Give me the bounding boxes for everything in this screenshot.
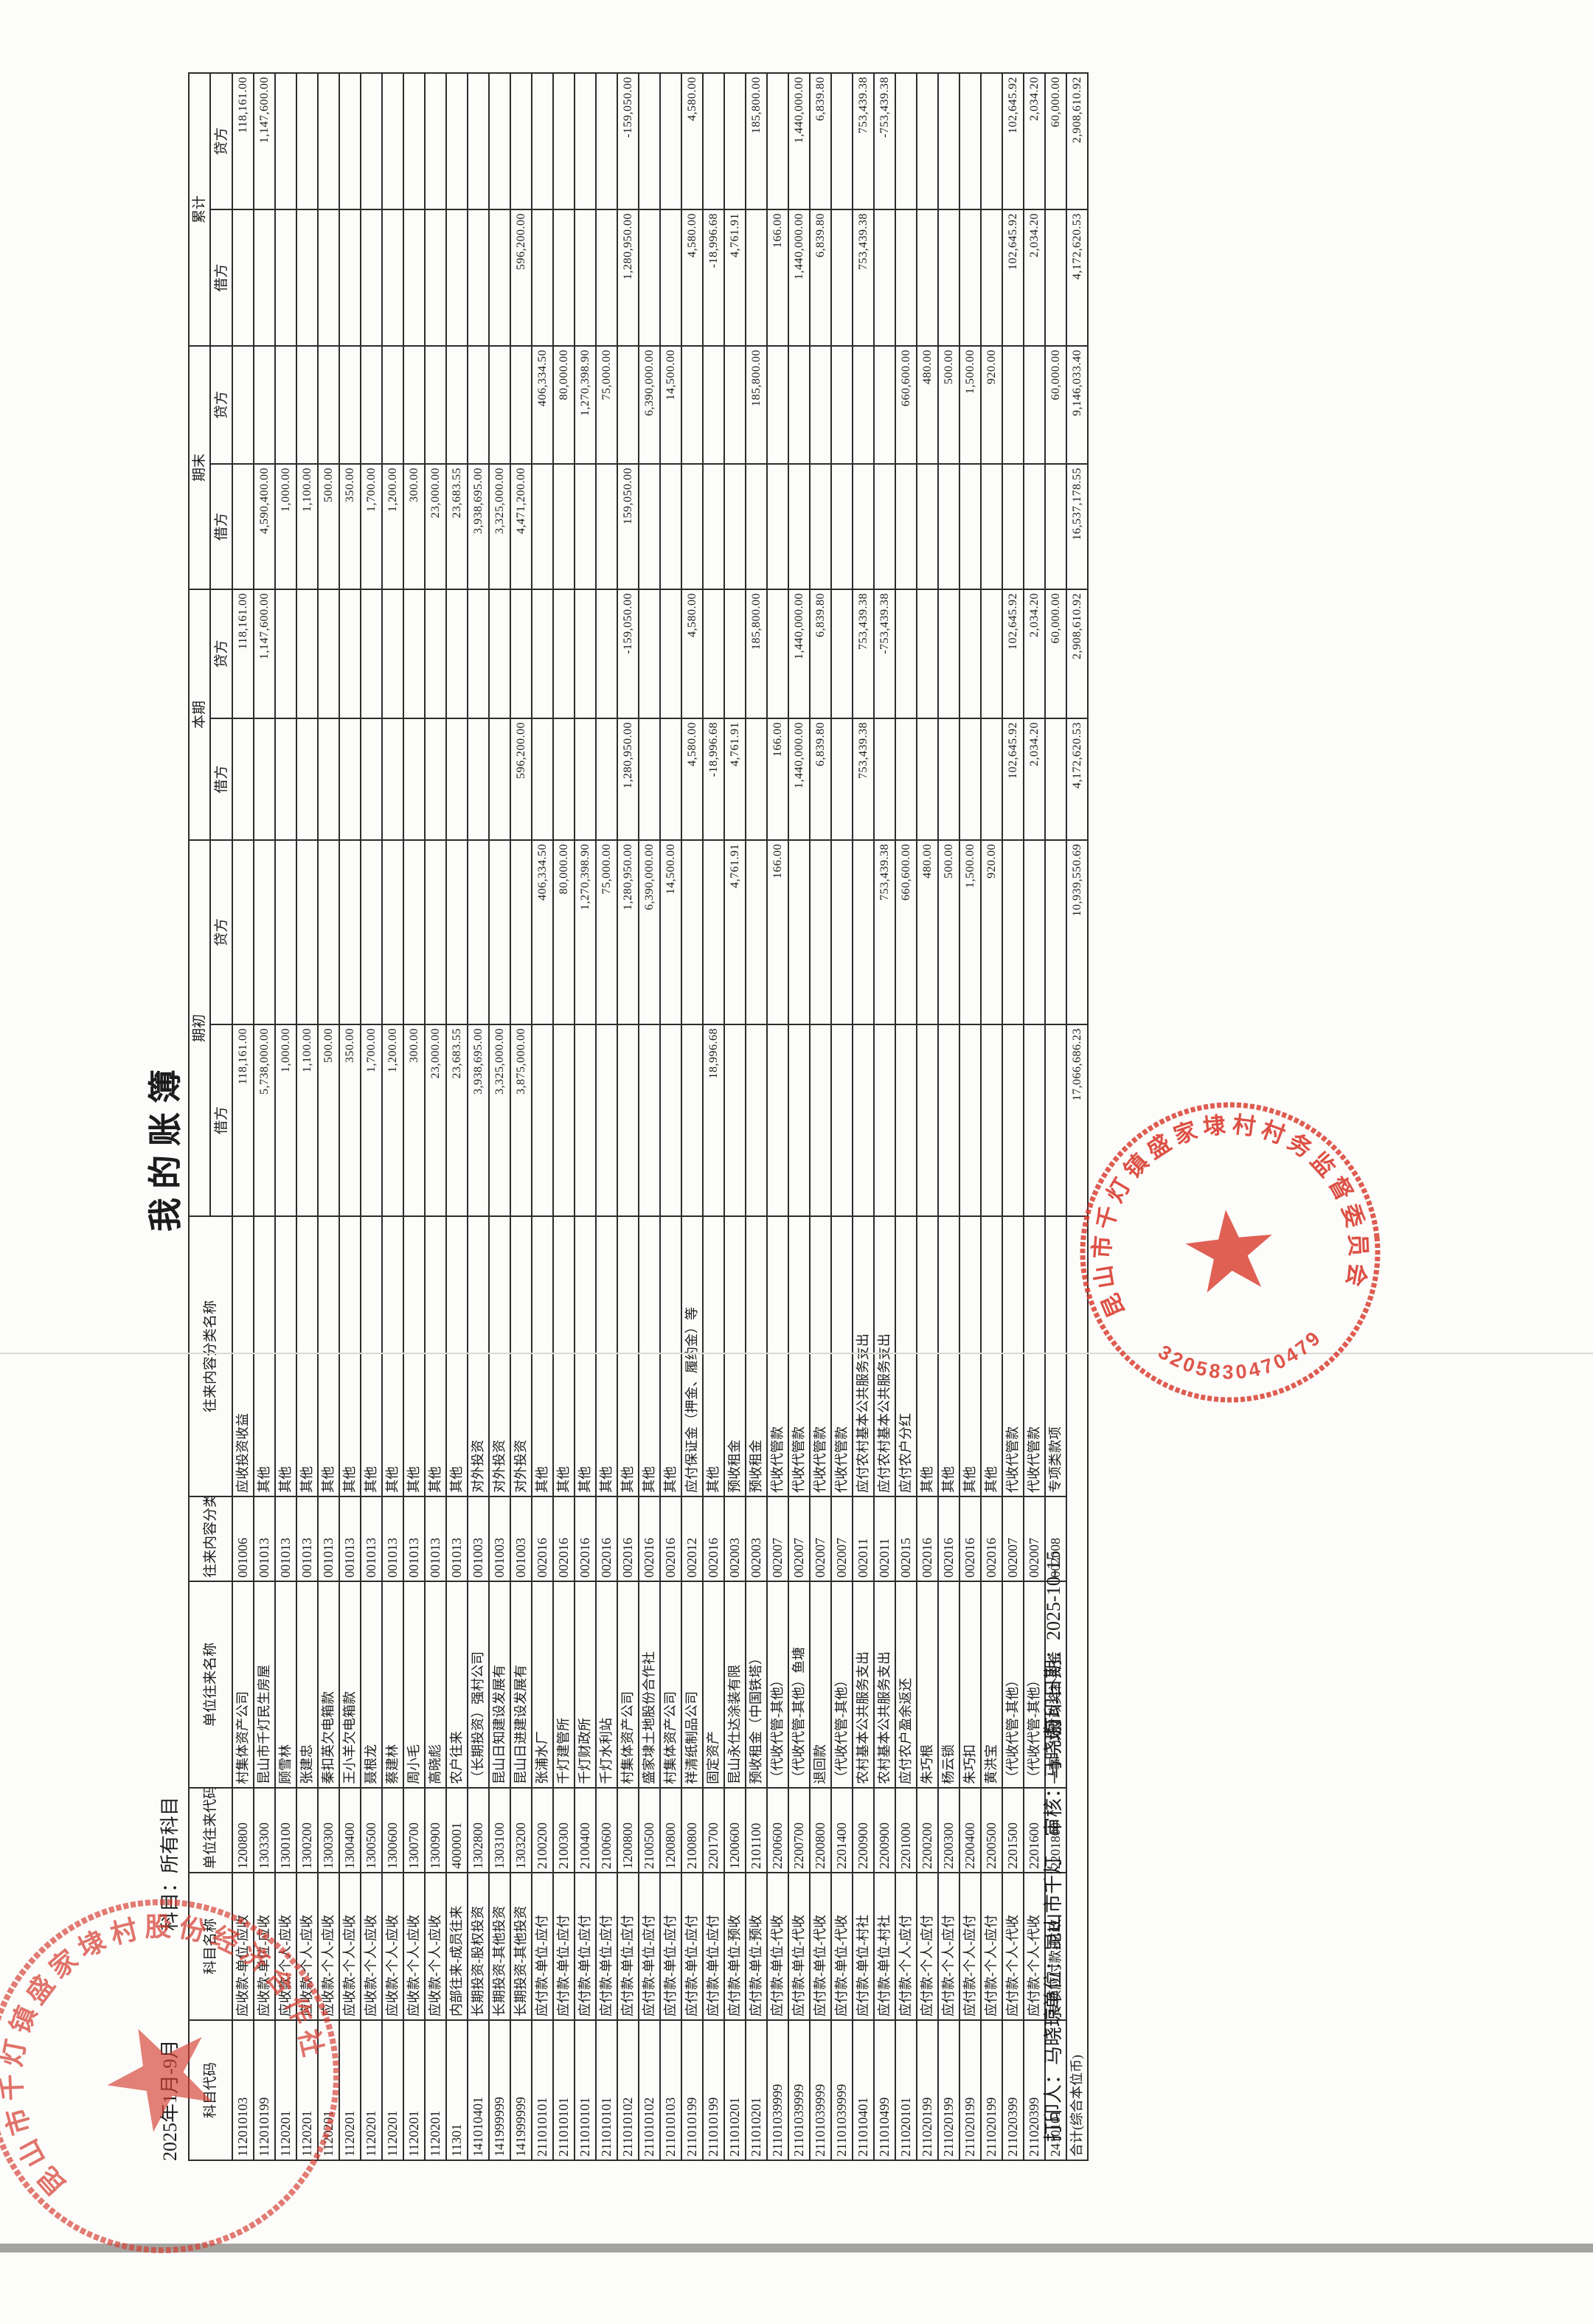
cell-period-debit: 166.00 [767,718,788,840]
cell-ending-credit [489,346,510,464]
cell-category-name: 其他 [660,1216,681,1496]
table-row: 1120201应收款-个人-应收1300500聂根龙001013其他1,700.… [361,73,382,2160]
cell-cumulative-debit [382,209,403,346]
cell-subject-name: 应付款-单位-预收 [746,1873,767,2020]
cell-period-credit [596,589,617,718]
total-opening-debit: 17,066,686.23 [1066,1024,1088,1216]
cell-cumulative-debit [639,209,660,346]
cell-unit-code: 1200800 [232,1788,254,1873]
cell-ending-credit [1002,346,1024,464]
cell-unit-code: 1300900 [425,1788,446,1873]
col-header-unit-name: 单位往来名称 [189,1581,232,1788]
cell-unit-name: （代收代管-其他）鱼塘 [788,1581,810,1788]
cell-opening-debit [553,1024,575,1216]
sub-header-opening-debit: 借方 [210,1024,232,1216]
cell-category-code: 002007 [810,1496,831,1581]
cell-subject-code: 211010101 [575,2020,596,2160]
cell-ending-debit: 1,200.00 [382,464,403,589]
cell-ending-debit: 500.00 [318,464,339,589]
cell-subject-name: 应付款-单位-应付 [617,1873,639,2020]
cell-unit-code: 1300700 [403,1788,425,1873]
cell-unit-code: 2200800 [810,1788,831,1873]
cell-opening-debit [767,1024,788,1216]
col-header-subject-code: 科目代码 [189,2020,232,2160]
cell-category-name: 应付农村基本公共服务支出 [874,1216,895,1496]
footer-unit-auditor: 单位：昆山市千灯 审核：马晓琼 [1038,1721,1066,2009]
cell-unit-name: 朱巧扣 [959,1581,981,1788]
cell-ending-credit [853,346,874,464]
cell-cumulative-debit [425,209,446,346]
cell-ending-credit: 1,500.00 [959,346,981,464]
cell-subject-name: 应付款-单位-应付 [639,1873,660,2020]
cell-opening-debit [1002,1024,1024,1216]
cell-subject-name: 应付款-单位-应付 [553,1873,575,2020]
cell-opening-debit [874,1024,895,1216]
cell-cumulative-credit: 102,645.92 [1002,73,1024,209]
cell-cumulative-debit: 6,839.80 [810,209,831,346]
cell-ending-debit [660,464,681,589]
cell-cumulative-debit [746,209,767,346]
cell-category-name: 其他 [703,1216,724,1496]
cell-ending-credit [810,346,831,464]
cell-subject-name: 应付款-单位-应付 [596,1873,617,2020]
sub-header-period-credit: 贷方 [210,589,232,718]
cell-ending-debit [831,464,853,589]
cell-ending-credit [617,346,639,464]
cell-category-name: 其他 [403,1216,425,1496]
cell-period-debit [339,718,361,840]
cell-ending-credit [318,346,339,464]
scan-edge-shadow [0,2244,1593,2252]
cell-category-code: 002016 [596,1496,617,1581]
cell-subject-name: 应付款-个人-代收 [1002,1873,1024,2020]
report-period: 2025年1月-9月 [155,2039,182,2161]
cell-unit-code: 2201400 [831,1788,853,1873]
cell-subject-code: 21101039999 [831,2020,853,2160]
cell-ending-debit [232,464,254,589]
cell-subject-name: 应付款-个人-应付 [895,1873,917,2020]
cell-subject-name: 应付款-单位-应付 [532,1873,553,2020]
cell-unit-code: 1200800 [660,1788,681,1873]
cell-ending-debit: 4,590,400.00 [254,464,275,589]
cell-unit-name: 千灯财政所 [575,1581,596,1788]
cell-cumulative-credit [510,73,532,209]
cell-opening-debit: 1,700.00 [361,1024,382,1216]
cell-category-code: 002015 [895,1496,917,1581]
cell-opening-credit [853,840,874,1024]
cell-period-debit [232,718,254,840]
cell-ending-debit [959,464,981,589]
cell-unit-name: 村集体资产公司 [232,1581,254,1788]
cell-unit-code: 2101100 [746,1788,767,1873]
table-row: 211010201应付款-单位-预收2101100预收租金（中国铁塔）00200… [746,73,767,2160]
cell-unit-code: 2200900 [853,1788,874,1873]
cell-unit-name: 农村基本公共服务支出 [853,1581,874,1788]
cell-opening-debit: 3,875,000.00 [510,1024,532,1216]
cell-cumulative-credit [596,73,617,209]
cell-category-code: 001013 [296,1496,318,1581]
cell-cumulative-debit [361,209,382,346]
cell-period-credit [575,589,596,718]
cell-period-credit [981,589,1002,718]
cell-opening-debit [895,1024,917,1216]
cell-subject-code: 211010201 [724,2020,746,2160]
cell-opening-debit [853,1024,874,1216]
cell-ending-credit [681,346,703,464]
cell-category-code: 001013 [403,1496,425,1581]
table-row: 211020199应付款-个人-应付2200300杨云锁002016其他500.… [938,73,959,2160]
cell-category-name: 应付保证金（押金、履约金）等 [681,1216,703,1496]
cell-category-name: 预收租金 [724,1216,746,1496]
cell-ending-debit [895,464,917,589]
cell-opening-credit [403,840,425,1024]
cell-period-credit [895,589,917,718]
cell-category-code: 002016 [617,1496,639,1581]
cell-category-code: 001013 [339,1496,361,1581]
cell-category-name: 代收代管款 [1002,1216,1024,1496]
cell-period-debit: 1,280,950.00 [617,718,639,840]
cell-cumulative-credit [831,73,853,209]
col-header-unit-code: 单位往来代码 [189,1788,232,1873]
cell-category-name: 代收代管款 [831,1216,853,1496]
cell-cumulative-credit [339,73,361,209]
cell-cumulative-debit [981,209,1002,346]
cell-unit-name: 农户往来 [446,1581,468,1788]
table-row: 211010103应付款-单位-应付1200800村集体资产公司002016其他… [660,73,681,2160]
cell-cumulative-credit: -753,439.38 [874,73,895,209]
table-row: 211020399应付款-个人-代收2201500（代收代管-其他）002007… [1002,73,1024,2160]
footer-print-date: 打印日期：2025-10-15 [1038,1551,1066,1736]
cell-cumulative-debit [339,209,361,346]
cell-ending-credit [510,346,532,464]
cell-subject-name: 应付款-个人-应付 [938,1873,959,2020]
cell-cumulative-credit: 753,439.38 [853,73,874,209]
cell-cumulative-credit [296,73,318,209]
cell-opening-debit: 3,938,695.00 [468,1024,489,1216]
cell-opening-credit: 80,000.00 [553,840,575,1024]
cell-category-name: 代收代管款 [767,1216,788,1496]
table-row: 21101039999应付款-单位-代收2200700（代收代管-其他）鱼塘00… [788,73,810,2160]
cell-cumulative-debit: 4,761.91 [724,209,746,346]
cell-cumulative-debit: 753,439.38 [853,209,874,346]
table-row: 1120201应收款-个人-应收1300400王小羊欠电箱款001013其他35… [339,73,361,2160]
cell-period-credit: -753,439.38 [874,589,895,718]
cell-unit-code: 2100400 [575,1788,596,1873]
cell-cumulative-credit [575,73,596,209]
cell-ending-credit [296,346,318,464]
cell-opening-debit: 300.00 [403,1024,425,1216]
cell-subject-name: 内部往来-成员往来 [446,1873,468,2020]
cell-cumulative-credit [361,73,382,209]
col-header-subject-name: 科目名称 [189,1873,232,2020]
table-row: 21101039999应付款-单位-代收2201400（代收代管-其他）0020… [831,73,853,2160]
cell-cumulative-credit: 118,161.00 [232,73,254,209]
cell-ending-credit: 500.00 [938,346,959,464]
cell-opening-credit [361,840,382,1024]
cell-category-code: 001003 [468,1496,489,1581]
cell-opening-credit [446,840,468,1024]
cell-period-debit [596,718,617,840]
cell-subject-code: 211010201 [746,2020,767,2160]
table-row: 1120201应收款-个人-应收1300300秦扣英欠电箱款001013其他50… [318,73,339,2160]
cell-unit-name: 黄洪宝 [981,1581,1002,1788]
cell-category-code: 002007 [1002,1496,1024,1581]
table-row: 211010101应付款-单位-应付2100300千灯建管所002016其他80… [553,73,575,2160]
cell-unit-code: 4000001 [446,1788,468,1873]
total-cumulative-debit: 4,172,620.53 [1066,209,1088,346]
cell-period-credit [639,589,660,718]
cell-subject-code: 211020199 [981,2020,1002,2160]
cell-opening-debit [596,1024,617,1216]
cell-category-name: 其他 [339,1216,361,1496]
cell-opening-credit: 1,500.00 [959,840,981,1024]
cell-subject-name: 应收款-个人-应收 [425,1873,446,2020]
cell-subject-name: 应收款-个人-应收 [296,1873,318,2020]
cell-ending-credit: 406,334.50 [532,346,553,464]
cell-opening-debit [810,1024,831,1216]
cell-unit-name: 高晓彪 [425,1581,446,1788]
cell-ending-debit [553,464,575,589]
cell-period-debit [874,718,895,840]
cell-opening-debit [959,1024,981,1216]
cell-ending-credit: 1,270,398.90 [575,346,596,464]
cell-subject-name: 应付款-单位-应付 [681,1873,703,2020]
cell-ending-credit [232,346,254,464]
cell-ending-debit: 1,100.00 [296,464,318,589]
cell-ending-debit [810,464,831,589]
cell-period-credit [446,589,468,718]
cell-ending-debit: 300.00 [403,464,425,589]
cell-cumulative-credit [981,73,1002,209]
cell-opening-credit: 920.00 [981,840,1002,1024]
cell-opening-debit: 1,100.00 [296,1024,318,1216]
cell-opening-debit [981,1024,1002,1216]
cell-category-code: 001003 [510,1496,532,1581]
table-row: 211010499应付款-单位-村社2200900农村基本公共服务支出00201… [874,73,895,2160]
cell-subject-name: 应付款-单位-预收 [724,1873,746,2020]
cell-opening-credit [254,840,275,1024]
cell-opening-credit: 166.00 [767,840,788,1024]
table-row: 141999999长期投资-其他投资1303200昆山日进建设发展有001003… [510,73,532,2160]
cell-opening-debit [917,1024,938,1216]
cell-opening-credit [1002,840,1024,1024]
cell-cumulative-debit [403,209,425,346]
group-header-ending: 期末 [189,346,210,589]
cell-opening-credit [831,840,853,1024]
cell-period-debit [403,718,425,840]
cell-period-credit [425,589,446,718]
table-row: 211020199应付款-个人-应付2200500黄洪宝002016其他920.… [981,73,1002,2160]
cell-subject-name: 应付款-个人-应付 [917,1873,938,2020]
cell-subject-name: 长期投资-股权投资 [468,1873,489,2020]
cell-cumulative-debit [596,209,617,346]
cell-category-code: 001013 [318,1496,339,1581]
cell-subject-code: 141010401 [468,2020,489,2160]
cell-opening-credit: 1,270,398.90 [575,840,596,1024]
cell-subject-code: 1120201 [275,2020,296,2160]
cell-opening-debit: 23,683.55 [446,1024,468,1216]
cell-category-code: 001013 [254,1496,275,1581]
cell-cumulative-credit [553,73,575,209]
cell-period-credit [959,589,981,718]
cell-period-debit: 1,440,000.00 [788,718,810,840]
total-label: 合计(综合本位币) [1066,1216,1088,2160]
cell-period-credit [403,589,425,718]
cell-subject-name: 应收款-个人-应收 [339,1873,361,2020]
table-row: 211020199应付款-个人-应付2200200朱巧根002016其他480.… [917,73,938,2160]
sub-header-ending-credit: 贷方 [210,346,232,464]
col-header-category-code: 往来内容分类代码 [189,1496,232,1581]
table-row: 211010101应付款-单位-应付2100200张浦水厂002016其他406… [532,73,553,2160]
cell-cumulative-debit [895,209,917,346]
cell-category-name: 其他 [318,1216,339,1496]
cell-category-name: 其他 [553,1216,575,1496]
cell-subject-code: 211020399 [1002,2020,1024,2160]
cell-ending-debit [703,464,724,589]
cell-cumulative-debit [254,209,275,346]
cell-category-code: 002007 [831,1496,853,1581]
cell-subject-name: 应付款-单位-代收 [810,1873,831,2020]
table-row: 112010199应收款-单位-应收1303300昆山市千灯民生房屋001013… [254,73,275,2160]
cell-subject-name: 应付款-单位-代收 [831,1873,853,2020]
cell-unit-code: 2201700 [703,1788,724,1873]
cell-opening-debit [639,1024,660,1216]
cell-category-name: 对外投资 [510,1216,532,1496]
cell-unit-name: 蔡建林 [382,1581,403,1788]
cell-unit-name: 千灯建管所 [553,1581,575,1788]
table-row: 141010401长期投资-股权投资1302800（长期投资）强村公司00100… [468,73,489,2160]
cell-subject-name: 应付款-单位-应付 [660,1873,681,2020]
cell-category-name: 其他 [981,1216,1002,1496]
group-header-period: 本期 [189,589,210,840]
cell-opening-credit: 4,761.91 [724,840,746,1024]
cell-cumulative-credit [703,73,724,209]
cell-cumulative-debit [938,209,959,346]
cell-period-credit [831,589,853,718]
cell-opening-credit [681,840,703,1024]
cell-unit-name: 张建忠 [296,1581,318,1788]
cell-opening-credit [746,840,767,1024]
cell-period-credit [382,589,403,718]
total-cumulative-credit: 2,908,610.92 [1066,73,1088,209]
cell-period-debit [959,718,981,840]
cell-subject-code: 21101039999 [788,2020,810,2160]
cell-ending-credit: 185,800.00 [746,346,767,464]
cell-ending-credit [874,346,895,464]
cell-category-name: 其他 [596,1216,617,1496]
cell-unit-name: 盛家埭土地股份合作社 [639,1581,660,1788]
cell-category-code: 002012 [681,1496,703,1581]
cell-ending-credit [382,346,403,464]
cell-subject-code: 211010199 [703,2020,724,2160]
cell-unit-name: 昆山日进建设发展有 [510,1581,532,1788]
table-row: 21101039999应付款-单位-代收2200800退回款002007代收代管… [810,73,831,2160]
cell-opening-credit [382,840,403,1024]
cell-subject-name: 应付款-单位-村社 [853,1873,874,2020]
cell-unit-code: 2201500 [1002,1788,1024,1873]
total-ending-credit: 9,146,033.40 [1066,346,1088,464]
cell-category-code: 002003 [746,1496,767,1581]
cell-ending-debit [938,464,959,589]
cell-ending-debit [874,464,895,589]
table-row: 211010102应付款-单位-应付2100500盛家埭土地股份合作社00201… [639,73,660,2160]
cell-unit-name: 昆山永仕达涂装有限 [724,1581,746,1788]
cell-opening-credit [296,840,318,1024]
cell-unit-name: （代收代管-其他） [767,1581,788,1788]
cell-ending-debit [596,464,617,589]
cell-ending-credit [724,346,746,464]
table-row: 211020199应付款-个人-应付2200400朱巧扣002016其他1,50… [959,73,981,2160]
cell-cumulative-debit [532,209,553,346]
cell-cumulative-debit [553,209,575,346]
table-row: 141999999长期投资-其他投资1303100昆山日知建设发展有001003… [489,73,510,2160]
cell-opening-credit: 480.00 [917,840,938,1024]
scan-fold-line [0,1353,1593,1354]
cell-subject-code: 211020199 [959,2020,981,2160]
cell-unit-code: 2200400 [959,1788,981,1873]
ledger-body: 112010103应收款-单位-应收1200800村集体资产公司001006应收… [232,73,1088,2160]
cell-category-name: 代收代管款 [810,1216,831,1496]
sub-header-cumulative-credit: 贷方 [210,73,232,209]
cell-cumulative-debit: 102,645.92 [1002,209,1024,346]
cell-cumulative-credit: 1,147,600.00 [254,73,275,209]
cell-subject-code: 1120201 [339,2020,361,2160]
cell-unit-name: 顾雪林 [275,1581,296,1788]
cell-period-debit: 596,200.00 [510,718,532,840]
cell-opening-credit [425,840,446,1024]
cell-category-name: 应付农村基本公共服务支出 [853,1216,874,1496]
cell-subject-code: 211010103 [660,2020,681,2160]
cell-ending-credit: 480.00 [917,346,938,464]
cell-subject-code: 211020101 [895,2020,917,2160]
cell-category-name: 其他 [938,1216,959,1496]
cell-subject-code: 1120201 [382,2020,403,2160]
cell-period-debit [254,718,275,840]
cell-cumulative-credit [938,73,959,209]
cell-unit-name: 村集体资产公司 [660,1581,681,1788]
cell-opening-credit [703,840,724,1024]
cell-subject-code: 211010102 [639,2020,660,2160]
cell-period-credit [468,589,489,718]
cell-ending-debit [681,464,703,589]
cell-opening-debit [746,1024,767,1216]
cell-unit-code: 1303200 [510,1788,532,1873]
cell-period-credit [339,589,361,718]
cell-period-debit [917,718,938,840]
cell-opening-credit: 406,334.50 [532,840,553,1024]
cell-category-name: 其他 [275,1216,296,1496]
cell-category-code: 002011 [853,1496,874,1581]
cell-ending-debit [853,464,874,589]
sub-header-cumulative-debit: 借方 [210,209,232,346]
cell-ending-debit: 3,938,695.00 [468,464,489,589]
cell-unit-name: 预收租金（中国铁塔） [746,1581,767,1788]
cell-period-credit [917,589,938,718]
cell-ending-credit: 14,500.00 [660,346,681,464]
cell-unit-name: 张浦水厂 [532,1581,553,1788]
cell-cumulative-credit [318,73,339,209]
cell-ending-debit [767,464,788,589]
table-row: 211010199应付款-单位-应付2201700固定资产002016其他18,… [703,73,724,2160]
cell-period-debit: 6,839.80 [810,718,831,840]
cell-unit-code: 2100800 [681,1788,703,1873]
cell-period-credit: 6,839.80 [810,589,831,718]
cell-category-code: 002016 [917,1496,938,1581]
cell-opening-credit: 660,600.00 [895,840,917,1024]
cell-ending-debit: 159,050.00 [617,464,639,589]
cell-subject-name: 应收款-单位-应收 [254,1873,275,2020]
cell-period-credit [296,589,318,718]
